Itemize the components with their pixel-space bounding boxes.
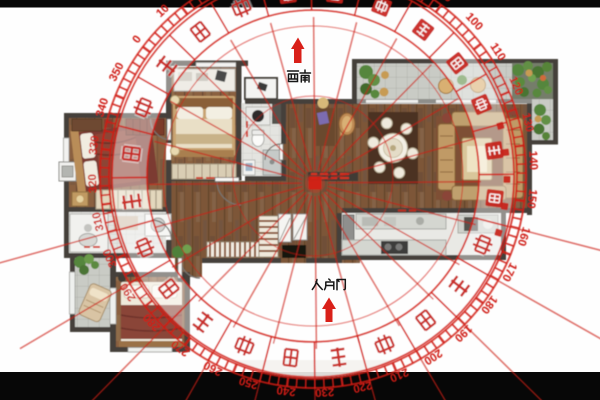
- svg-text:230: 230: [315, 385, 335, 398]
- svg-text:330: 330: [87, 135, 101, 156]
- svg-text:140: 140: [526, 151, 539, 171]
- svg-text:320: 320: [87, 174, 100, 194]
- svg-text:240: 240: [276, 383, 297, 397]
- svg-text:150: 150: [524, 189, 538, 210]
